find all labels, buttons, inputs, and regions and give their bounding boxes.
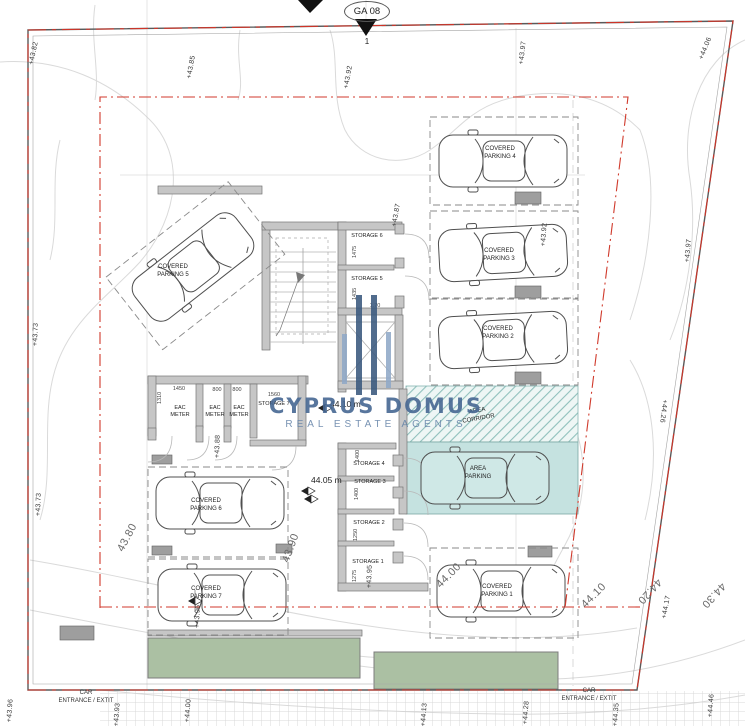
dimension: 1400: [355, 450, 361, 462]
spot-elevation: +43.73: [35, 493, 43, 517]
site-plan: GA 08 1 +43.82 +43.85 +43.92 +43.97 +44.…: [0, 0, 745, 726]
ga-point-number: 1: [360, 37, 374, 46]
dimension: 1275: [352, 570, 358, 582]
dimension: 800: [209, 387, 225, 393]
dimension: 800: [229, 387, 245, 393]
logo-bar: [356, 295, 362, 395]
room-label-eac-meter-1: EAC METER: [162, 405, 198, 419]
dimension: 1310: [157, 392, 163, 404]
north-triangle: [298, 0, 323, 13]
room-label-storage3: STORAGE 3: [348, 479, 392, 486]
parking-label-2: COVERED PARKING 2: [468, 325, 528, 341]
parking-label-4: COVERED PARKING 4: [470, 145, 530, 161]
spot-elevation: +43.73: [32, 323, 40, 347]
spot-elevation: +43.88: [214, 435, 222, 459]
dimension: 1250: [353, 529, 359, 541]
spot-elevation: +43.96: [194, 605, 202, 629]
car-entrance-right: CAR ENTRANCE / EXTIT: [550, 687, 628, 704]
room-label-eac-meter-3: EAC METER: [225, 405, 253, 419]
room-label-storage7: STORAGE 7: [252, 401, 296, 408]
room-label-storage2: STORAGE 2: [347, 520, 391, 527]
level-label-lower: 44.05 m: [311, 475, 342, 485]
room-label-storage6: STORAGE 6: [345, 233, 389, 240]
parking-label-3: COVERED PARKING 3: [469, 247, 529, 263]
logo-bar: [386, 332, 391, 388]
parking-label-5: COVERED PARKING 5: [143, 263, 203, 279]
area-parking-label: AREA PARKING: [450, 465, 506, 481]
dimension: 1400: [354, 488, 360, 500]
dimension: 1450: [164, 386, 194, 392]
staircase: [270, 238, 336, 344]
logo-bar: [342, 334, 347, 384]
car-entrance-left: CAR ENTRANCE / EXTIT: [47, 689, 125, 706]
logo-bar: [371, 295, 377, 395]
landscape-strips: [148, 638, 558, 689]
spot-elevation: +43.95: [366, 565, 374, 589]
dimension: 1475: [352, 246, 358, 258]
dimension: 1560: [262, 392, 286, 398]
parking-label-7: COVERED PARKING 7: [176, 585, 236, 601]
room-label-storage5: STORAGE 5: [345, 276, 389, 283]
parking-label-6: COVERED PARKING 6: [176, 497, 236, 513]
parking-label-1: COVERED PARKING 1: [467, 583, 527, 599]
ga-bubble: GA 08: [344, 1, 390, 22]
room-label-storage1: STORAGE 1: [346, 559, 390, 566]
room-label-storage4: STORAGE 4: [347, 461, 391, 468]
level-label-upper: 44.10 m: [330, 399, 361, 409]
